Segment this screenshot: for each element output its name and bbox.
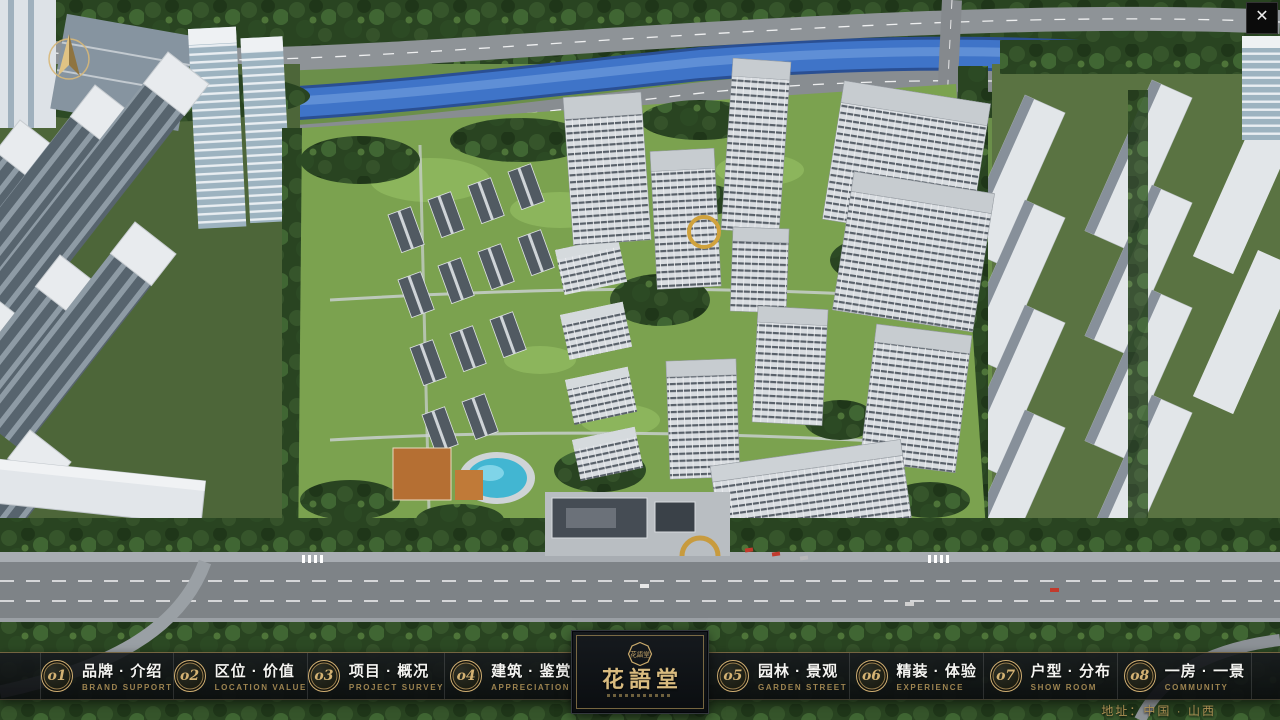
logo-title: 花語堂 xyxy=(597,668,683,692)
nav-item-architecture[interactable]: o4 建筑 · 鉴赏APPRECIATION xyxy=(445,653,577,699)
west-district xyxy=(0,0,316,604)
nav-label-en: PROJECT SURVEY xyxy=(349,683,444,692)
nav-number-badge: o4 xyxy=(450,660,482,692)
nav-item-project[interactable]: o3 项目 · 概况PROJECT SURVEY xyxy=(308,653,445,699)
nav-number-badge: o5 xyxy=(717,660,749,692)
nav-item-brand[interactable]: o1 品牌 · 介绍BRAND SUPPORT xyxy=(41,653,174,699)
nav-right-spacer xyxy=(1252,653,1280,699)
nav-label-en: COMMUNITY xyxy=(1165,683,1229,692)
nav-label-zh: 项目 · 概况 xyxy=(349,660,429,681)
nav-label-en: APPRECIATION xyxy=(491,683,570,692)
nav-item-location[interactable]: o2 区位 · 价值LOCATION VALUE xyxy=(174,653,308,699)
nav-number: o6 xyxy=(862,668,881,684)
nav-number-badge: o6 xyxy=(856,660,888,692)
clubhouse xyxy=(393,448,451,500)
nav-label-en: LOCATION VALUE xyxy=(215,683,307,692)
nav-number: o5 xyxy=(723,668,742,684)
nav-number-badge: o3 xyxy=(308,660,340,692)
nav-label-zh: 品牌 · 介绍 xyxy=(82,660,162,681)
compass-icon xyxy=(40,28,98,90)
logo-tagline-rule xyxy=(607,694,673,697)
nav-number-badge: o1 xyxy=(41,660,73,692)
nav-item-interior[interactable]: o6 精装 · 体验EXPERIENCE xyxy=(850,653,984,699)
nav-label-zh: 一房 · 一景 xyxy=(1165,660,1245,681)
nav-item-views[interactable]: o8 一房 · 一景COMMUNITY xyxy=(1118,653,1252,699)
address-text: 地址：中国 · 山西 xyxy=(1101,702,1216,719)
nav-number-badge: o8 xyxy=(1124,660,1156,692)
nav-number: o7 xyxy=(996,668,1015,684)
nav-label-en: EXPERIENCE xyxy=(897,683,965,692)
nav-label-zh: 户型 · 分布 xyxy=(1031,660,1111,681)
nav-item-garden[interactable]: o5 园林 · 景观GARDEN STREET xyxy=(716,653,850,699)
seal-icon: 花語堂 xyxy=(627,641,653,667)
aerial-map-viewport[interactable] xyxy=(0,0,1280,720)
nav-label-en: BRAND SUPPORT xyxy=(82,683,173,692)
nav-label-en: GARDEN STREET xyxy=(758,683,847,692)
nav-group-right: o5 园林 · 景观GARDEN STREET o6 精装 · 体验EXPERI… xyxy=(716,653,1253,699)
seal-text: 花語堂 xyxy=(630,650,650,659)
logo-inner-frame: 花語堂 花語堂 xyxy=(576,635,704,709)
nav-label-zh: 园林 · 景观 xyxy=(758,660,838,681)
nav-label-zh: 区位 · 价值 xyxy=(215,660,295,681)
main-gate xyxy=(545,492,730,556)
nav-number: o3 xyxy=(314,668,333,684)
nav-number: o1 xyxy=(47,668,66,684)
nav-label-zh: 建筑 · 鉴赏 xyxy=(491,660,571,681)
nav-label-en: SHOW ROOM xyxy=(1031,683,1097,692)
nav-left-spacer xyxy=(0,653,41,699)
nav-number: o8 xyxy=(1130,668,1149,684)
nav-number-badge: o2 xyxy=(174,660,206,692)
app-window: ✕ o1 品牌 · 介绍BRAND SUPPORT o2 区位 · 价值LOCA… xyxy=(0,0,1280,720)
nav-number: o4 xyxy=(457,668,476,684)
logo-panel[interactable]: 花語堂 花語堂 xyxy=(572,631,708,713)
nav-item-floorplans[interactable]: o7 户型 · 分布SHOW ROOM xyxy=(984,653,1118,699)
nav-number: o2 xyxy=(180,668,199,684)
nav-number-badge: o7 xyxy=(990,660,1022,692)
close-button[interactable]: ✕ xyxy=(1246,2,1278,34)
nav-label-zh: 精装 · 体验 xyxy=(897,660,977,681)
nav-group-left: o1 品牌 · 介绍BRAND SUPPORT o2 区位 · 价值LOCATI… xyxy=(41,653,578,699)
